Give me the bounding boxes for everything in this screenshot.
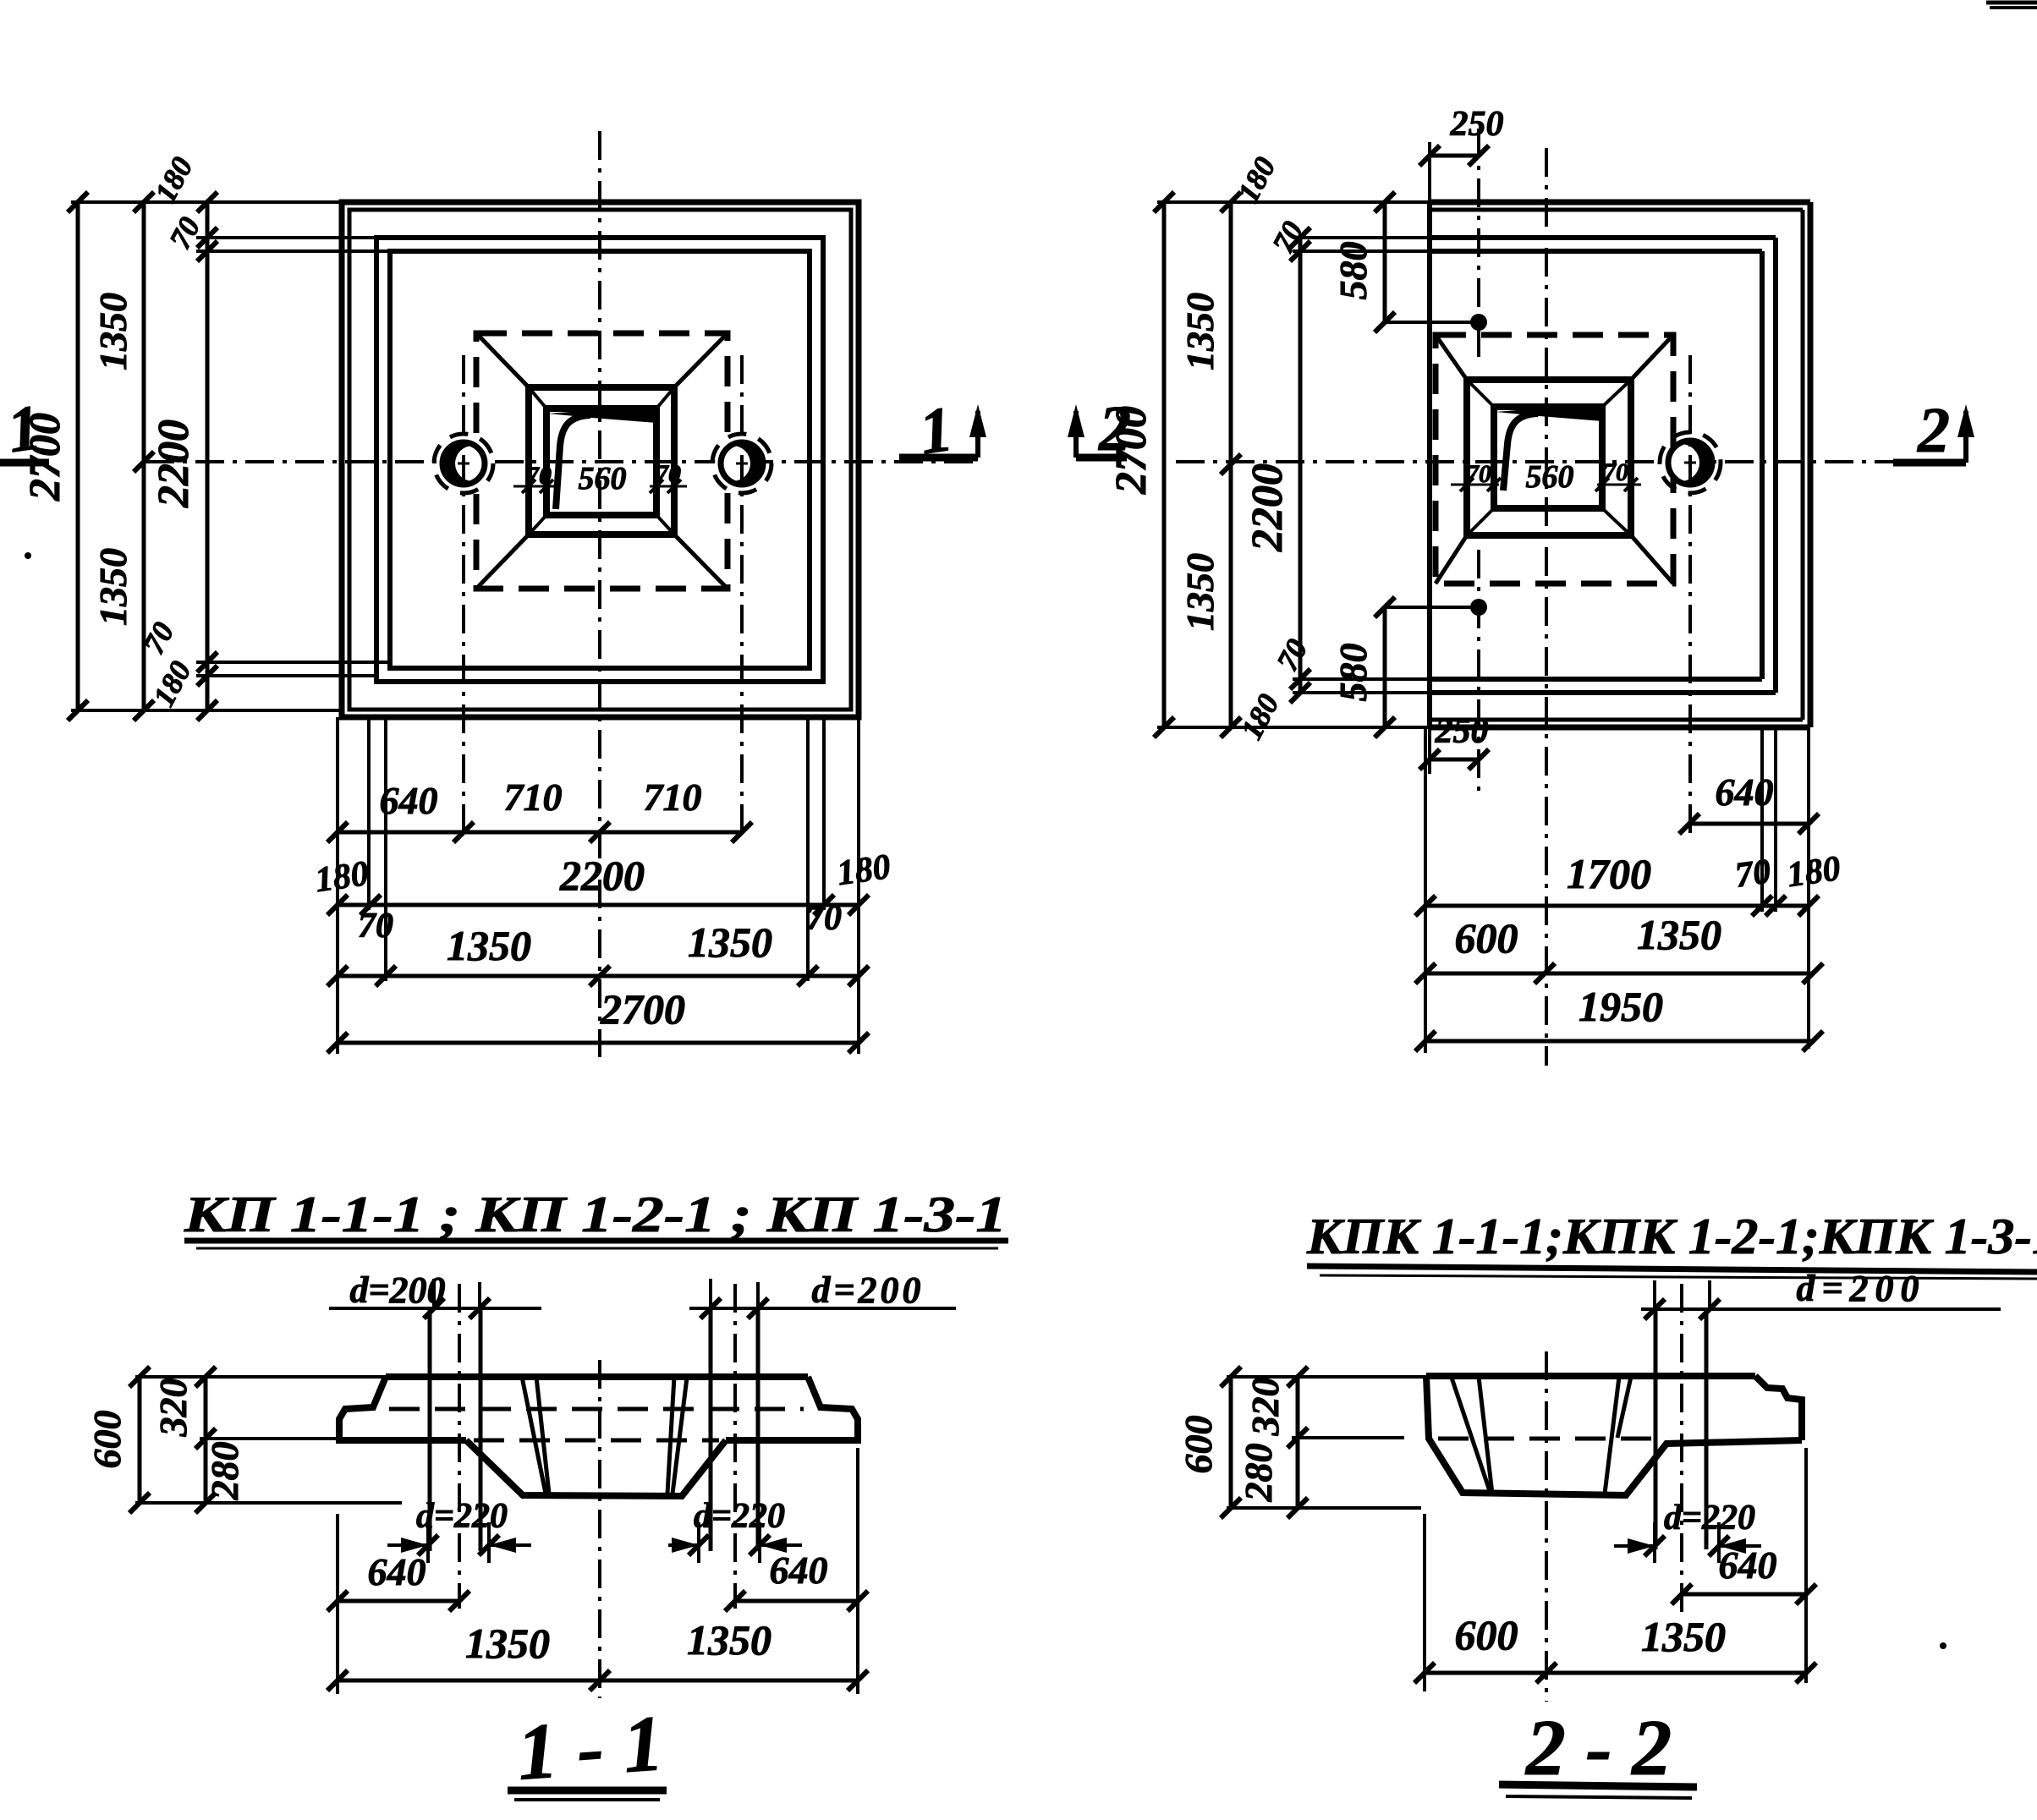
svg-text:1350: 1350 (687, 1616, 771, 1664)
svg-text:70: 70 (358, 907, 393, 946)
svg-text:d=220: d=220 (694, 1497, 785, 1536)
svg-text:d=200: d=200 (349, 1269, 445, 1311)
svg-text:640: 640 (380, 779, 438, 822)
svg-text:1 - 1: 1 - 1 (514, 1699, 666, 1797)
svg-text:2200: 2200 (559, 852, 645, 899)
svg-text:250: 250 (1450, 105, 1504, 144)
svg-text:600: 600 (1455, 1611, 1518, 1658)
svg-text:d=200: d=200 (811, 1269, 924, 1311)
svg-text:70: 70 (656, 460, 681, 488)
svg-text:640: 640 (770, 1549, 828, 1592)
svg-text:560: 560 (579, 461, 627, 496)
svg-text:70: 70 (1466, 460, 1491, 488)
svg-text:2200: 2200 (150, 419, 198, 508)
svg-text:640: 640 (368, 1550, 426, 1593)
svg-text:320: 320 (151, 1379, 195, 1438)
svg-text:640: 640 (1719, 1543, 1777, 1587)
svg-text:1350: 1350 (1637, 911, 1721, 958)
svg-text:250: 250 (1435, 712, 1489, 751)
svg-text:600: 600 (85, 1411, 129, 1469)
svg-text:1950: 1950 (1579, 983, 1663, 1030)
svg-text:2200: 2200 (1244, 463, 1292, 552)
svg-text:1350: 1350 (447, 922, 531, 969)
svg-text:2 - 2: 2 - 2 (1524, 1704, 1672, 1792)
svg-text:70: 70 (1732, 852, 1773, 895)
svg-text:600: 600 (1177, 1416, 1220, 1474)
svg-text:КП 1-1-1 ; КП 1-2-1 ; КП 1-3-: КП 1-1-1 ; КП 1-2-1 ; КП 1-3-1 (184, 1187, 1007, 1242)
svg-text:1350: 1350 (91, 293, 135, 370)
svg-text:560: 560 (1526, 459, 1574, 495)
svg-text:280: 280 (203, 1442, 246, 1501)
svg-text:710: 710 (504, 776, 563, 819)
svg-text:180: 180 (835, 847, 893, 893)
svg-text:180: 180 (148, 151, 200, 207)
svg-text:d=220: d=220 (416, 1497, 508, 1536)
svg-text:70: 70 (1603, 458, 1628, 486)
svg-text:1350: 1350 (1178, 553, 1222, 631)
svg-text:1350: 1350 (688, 918, 772, 966)
svg-text:2: 2 (1098, 393, 1131, 464)
svg-text:180: 180 (313, 854, 371, 900)
svg-text:180: 180 (1231, 151, 1282, 207)
svg-text:320: 320 (1244, 1378, 1287, 1437)
svg-text:70: 70 (526, 462, 552, 490)
svg-text:600: 600 (1455, 914, 1518, 962)
svg-text:d=200: d=200 (1796, 1268, 1925, 1309)
svg-text:180: 180 (1234, 688, 1286, 744)
svg-text:70: 70 (806, 899, 842, 938)
svg-text:640: 640 (1716, 770, 1774, 814)
svg-text:2700: 2700 (600, 985, 685, 1033)
svg-text:1700: 1700 (1567, 850, 1651, 897)
svg-text:1350: 1350 (1178, 293, 1222, 370)
svg-text:180: 180 (1785, 849, 1843, 895)
svg-text:2: 2 (1917, 395, 1950, 466)
svg-text:1350: 1350 (465, 1620, 550, 1667)
svg-text:710: 710 (644, 776, 702, 819)
svg-text:КПК 1-1-1;КПК 1-2-1;КПК 1-3-1: КПК 1-1-1;КПК 1-2-1;КПК 1-3-1 (1306, 1209, 2037, 1264)
svg-text:d=220: d=220 (1664, 1499, 1755, 1538)
svg-text:280: 280 (1237, 1444, 1280, 1503)
svg-text:1350: 1350 (91, 548, 135, 626)
svg-text:1: 1 (3, 392, 45, 466)
svg-text:1350: 1350 (1641, 1613, 1726, 1660)
